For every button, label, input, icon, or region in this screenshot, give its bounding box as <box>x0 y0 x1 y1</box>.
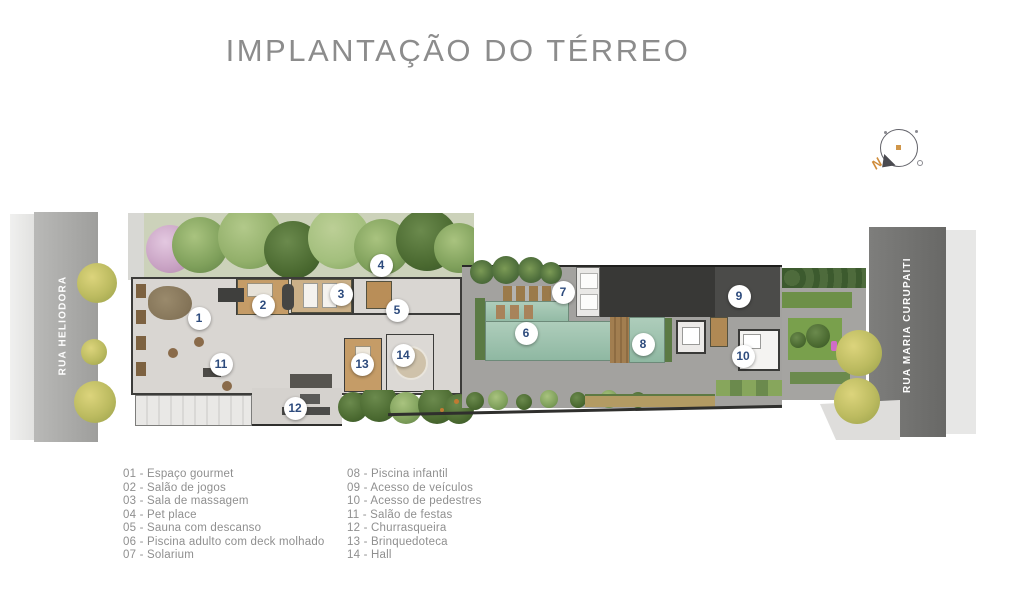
gourmet-table <box>218 288 244 302</box>
entry-desk <box>682 327 700 345</box>
support-building <box>576 267 600 317</box>
pool-adult <box>486 322 610 360</box>
plan-marker-3: 3 <box>330 283 353 306</box>
unit <box>580 294 598 310</box>
tree-cluster <box>338 390 474 427</box>
wood-deck-divider <box>610 315 630 363</box>
plan-marker-number: 10 <box>736 349 749 363</box>
plan-marker-1: 1 <box>188 307 211 330</box>
plan-marker-number: 2 <box>260 298 267 312</box>
pool-deck-loungers <box>496 305 538 319</box>
lawn <box>788 318 842 360</box>
legend-item-11: 11 - Salão de festas <box>347 509 482 523</box>
plan-marker-number: 14 <box>396 348 409 362</box>
hedge <box>475 298 485 360</box>
legend-item-12: 12 - Churrasqueira <box>347 522 482 536</box>
compass-tick <box>917 160 923 166</box>
street-tree-icon <box>74 381 116 423</box>
gravel-strip <box>585 394 715 407</box>
legend-item-01: 01 - Espaço gourmet <box>123 468 325 482</box>
legend-item-10: 10 - Acesso de pedestres <box>347 495 482 509</box>
shrub-icon <box>570 392 586 408</box>
table <box>222 381 232 391</box>
garden-band-top <box>128 213 474 280</box>
plan-marker-number: 3 <box>338 287 345 301</box>
shrub-strip <box>716 380 782 396</box>
tree-icon <box>390 392 422 424</box>
street-tree-icon <box>81 339 107 365</box>
entry-wood-wall <box>710 317 728 347</box>
entry-room <box>676 320 706 354</box>
table <box>168 348 178 358</box>
legend-item-08: 08 - Piscina infantil <box>347 468 482 482</box>
shrub-icon <box>540 390 558 408</box>
plan-marker-12: 12 <box>284 397 307 420</box>
site-plan-page: IMPLANTAÇÃO DO TÉRREO N RUA HELIODORA RU… <box>0 0 1024 600</box>
lawn-strip <box>782 292 852 308</box>
left-road-label: RUA HELIODORA <box>58 271 69 381</box>
plan-marker-9: 9 <box>728 285 751 308</box>
street-tree-icon <box>836 330 882 376</box>
plan-marker-2: 2 <box>252 294 275 317</box>
planters <box>136 284 146 386</box>
plan-marker-number: 4 <box>378 258 385 272</box>
right-sidewalk <box>946 230 976 434</box>
street-tree-icon <box>834 378 880 424</box>
garden-path <box>128 213 144 280</box>
street-tree-icon <box>77 263 117 303</box>
shrub-icon <box>466 392 484 410</box>
legend-item-13: 13 - Brinquedoteca <box>347 536 482 550</box>
palm-tree-icon <box>470 260 494 284</box>
hedge-row <box>790 372 850 384</box>
solarium-loungers <box>503 286 555 301</box>
plan-marker-number: 8 <box>640 337 647 351</box>
plan-marker-number: 7 <box>560 285 567 299</box>
right-road-label: RUA MARIA CURUPAITI <box>902 268 913 393</box>
pergola <box>135 395 252 426</box>
plan-marker-6: 6 <box>515 322 538 345</box>
shrub-icon <box>488 390 508 410</box>
plan-marker-4: 4 <box>370 254 393 277</box>
plan-marker-10: 10 <box>732 345 755 368</box>
plan-marker-number: 12 <box>288 401 301 415</box>
compass-tick <box>884 131 887 134</box>
shrub-icon <box>806 324 830 348</box>
bar-counter <box>282 284 294 310</box>
table <box>194 337 204 347</box>
legend-item-04: 04 - Pet place <box>123 509 325 523</box>
palm-tree-icon <box>492 256 520 284</box>
vehicle-access-roof <box>600 265 780 317</box>
legend-item-05: 05 - Sauna com descanso <box>123 522 325 536</box>
plan-marker-number: 11 <box>215 357 228 371</box>
legend-item-02: 02 - Salão de jogos <box>123 482 325 496</box>
hedge <box>664 318 672 362</box>
compass-center-dot <box>896 145 901 150</box>
fruit-dot <box>454 399 459 404</box>
plan-marker-number: 5 <box>394 303 401 317</box>
hedge-row <box>782 268 866 288</box>
legend-column-2: 08 - Piscina infantil09 - Acesso de veíc… <box>347 468 482 563</box>
legend-item-09: 09 - Acesso de veículos <box>347 482 482 496</box>
gourmet-counter <box>148 286 192 320</box>
shrub-icon <box>790 332 806 348</box>
legend-item-06: 06 - Piscina adulto com deck molhado <box>123 536 325 550</box>
plan-marker-number: 13 <box>355 357 368 371</box>
massage-bed <box>303 283 318 308</box>
legend-item-07: 07 - Solarium <box>123 549 325 563</box>
plan-marker-13: 13 <box>351 353 374 376</box>
legend-column-1: 01 - Espaço gourmet02 - Salão de jogos03… <box>123 468 325 563</box>
left-sidewalk <box>10 214 34 440</box>
plan-marker-number: 9 <box>736 289 743 303</box>
plan-marker-5: 5 <box>386 299 409 322</box>
plan-marker-14: 14 <box>392 344 415 367</box>
page-title: IMPLANTAÇÃO DO TÉRREO <box>128 33 788 69</box>
plan-marker-11: 11 <box>210 353 233 376</box>
plan-marker-number: 1 <box>196 311 203 325</box>
compass-tick <box>915 130 918 133</box>
plan-marker-number: 6 <box>523 326 530 340</box>
dining-table <box>290 374 332 389</box>
legend-item-14: 14 - Hall <box>347 549 482 563</box>
shrub-icon <box>516 394 532 410</box>
legend-item-03: 03 - Sala de massagem <box>123 495 325 509</box>
unit <box>580 273 598 289</box>
plan-marker-8: 8 <box>632 333 655 356</box>
plan-marker-7: 7 <box>552 281 575 304</box>
